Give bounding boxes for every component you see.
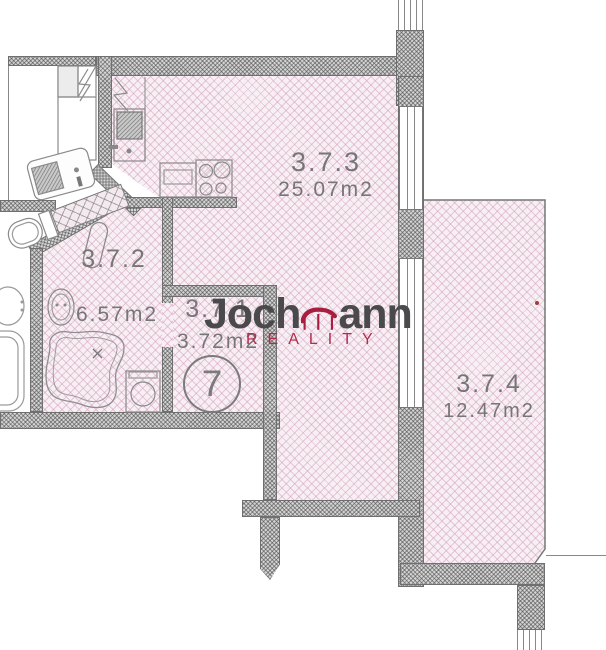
window-glazing-line (414, 107, 415, 209)
wall-top-main (96, 56, 398, 76)
unit-number-badge: 7 (183, 355, 241, 413)
wardrobe (58, 66, 96, 160)
brand-text-right: ann (338, 293, 411, 336)
window-upper (399, 106, 423, 210)
watermark-logo: Joch ann (204, 293, 412, 336)
watermark-subtitle: REALITY (246, 331, 383, 349)
duct-lines-top (398, 0, 425, 30)
wall-spike (260, 517, 280, 580)
room-living-number: 3.7.3 (280, 147, 372, 178)
neighbour-basin (0, 287, 24, 325)
room-living-area: 25.07m2 (270, 178, 382, 202)
room-bathroom-area: 6.57m2 (64, 303, 170, 327)
wall-top-left (8, 56, 96, 66)
wall-hall-bottom (0, 200, 56, 212)
wall-bathroom-left (30, 248, 43, 412)
mirror-zigzag-icon (79, 69, 90, 101)
room-loggia-area: 12.47m2 (437, 400, 541, 423)
brand-text-left: Joch (204, 293, 300, 336)
window-glazing-line (407, 107, 408, 209)
window-glazing-line (414, 259, 415, 407)
wall-loggia-bottom (400, 563, 545, 585)
room-loggia-number: 3.7.4 (443, 370, 535, 399)
hall-left-edge-line (8, 56, 9, 202)
wall-hall-kitchen (98, 56, 112, 168)
duct-lines-bottom (517, 630, 542, 650)
wall-loggia-stub (517, 585, 545, 630)
site-line-right (546, 555, 606, 556)
hall-sink-unit (26, 147, 96, 202)
floor-plan: 3.7.3 25.07m2 3.7.2 6.57m2 3.7.1 3.72m2 … (0, 0, 606, 650)
unit-number: 7 (202, 363, 223, 405)
wall-living-bottom (242, 500, 420, 517)
room-bathroom-number: 3.7.2 (68, 245, 160, 274)
neighbour-bathtub (0, 331, 24, 411)
wall-kitchen-bottom (112, 197, 237, 208)
wall-bottom-band (0, 412, 280, 429)
